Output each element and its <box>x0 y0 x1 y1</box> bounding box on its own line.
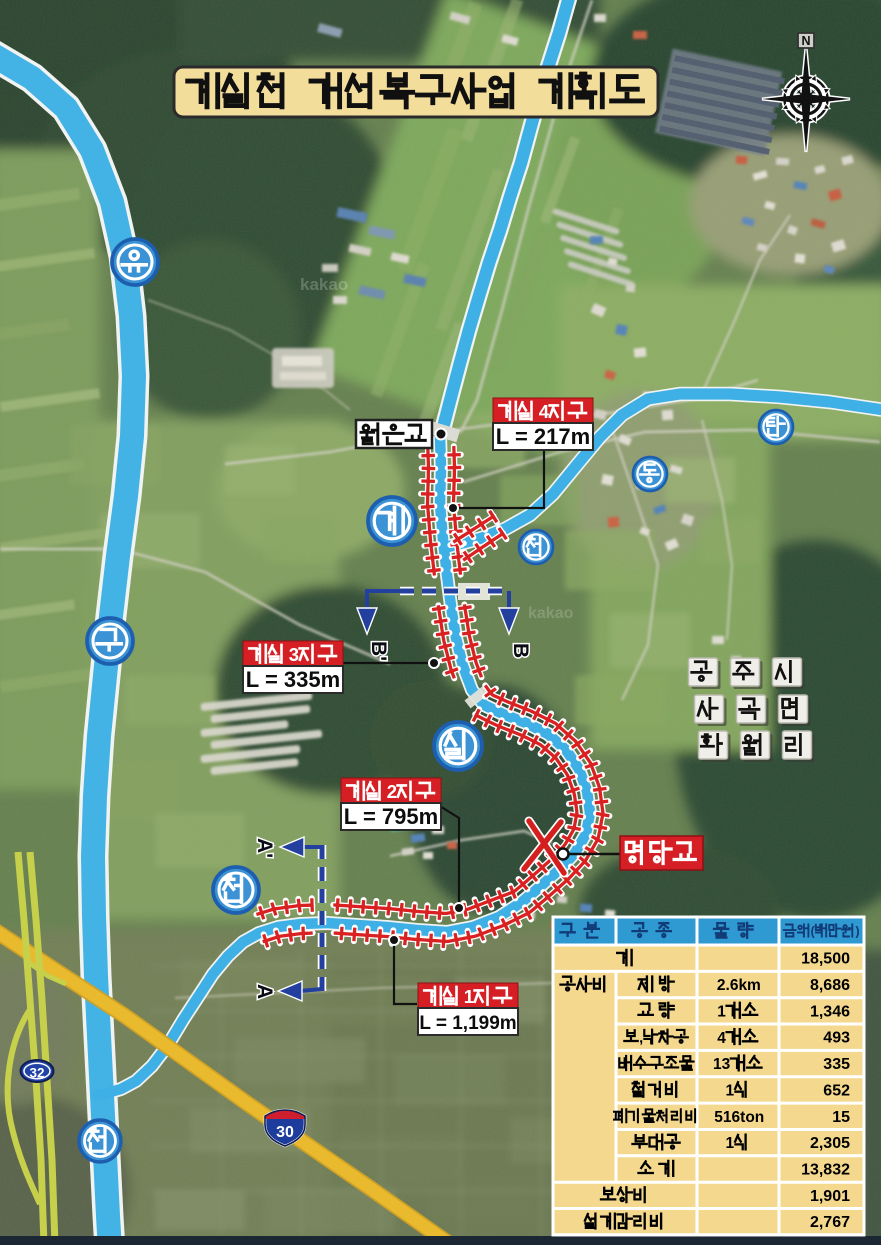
svg-text:516ton: 516ton <box>714 1109 764 1126</box>
svg-text:,: , <box>639 1030 643 1046</box>
svg-text:652: 652 <box>823 1082 850 1099</box>
svg-text:1: 1 <box>726 1135 735 1152</box>
svg-text:3: 3 <box>289 644 299 665</box>
svg-text:32: 32 <box>29 1066 44 1081</box>
svg-text:1: 1 <box>464 986 474 1007</box>
svg-text:30: 30 <box>276 1124 294 1141</box>
svg-text:L = 217m: L = 217m <box>496 424 590 449</box>
svg-text:13: 13 <box>713 1056 731 1073</box>
svg-text:A: A <box>253 984 276 999</box>
svg-text:18,500: 18,500 <box>801 951 850 968</box>
svg-text:): ) <box>855 924 859 939</box>
svg-text:1,346: 1,346 <box>810 1003 850 1020</box>
svg-text:kakao: kakao <box>300 275 348 294</box>
svg-text:493: 493 <box>823 1030 850 1047</box>
svg-text:335: 335 <box>823 1056 850 1073</box>
svg-text:4: 4 <box>717 1030 726 1047</box>
svg-text:2: 2 <box>387 781 397 802</box>
svg-text:2,305: 2,305 <box>810 1135 850 1152</box>
svg-text:1: 1 <box>726 1083 735 1100</box>
svg-text:1,901: 1,901 <box>810 1188 850 1205</box>
svg-text:4: 4 <box>539 401 550 422</box>
svg-text:L = 795m: L = 795m <box>344 804 438 829</box>
svg-text:L = 1,199m: L = 1,199m <box>419 1013 516 1034</box>
svg-text:8,686: 8,686 <box>810 977 850 994</box>
svg-text:kakao: kakao <box>528 605 574 622</box>
svg-text:N: N <box>801 34 810 48</box>
svg-text:1: 1 <box>717 1004 726 1021</box>
svg-text:L = 335m: L = 335m <box>246 667 340 692</box>
svg-text:2,767: 2,767 <box>810 1214 850 1231</box>
svg-text:B': B' <box>367 641 390 661</box>
svg-text:B: B <box>509 643 532 658</box>
svg-text:15: 15 <box>832 1109 850 1126</box>
svg-text:(: ( <box>811 924 816 939</box>
svg-text:13,832: 13,832 <box>801 1162 850 1179</box>
svg-text:2.6km: 2.6km <box>717 977 761 994</box>
svg-text:A': A' <box>253 838 276 858</box>
